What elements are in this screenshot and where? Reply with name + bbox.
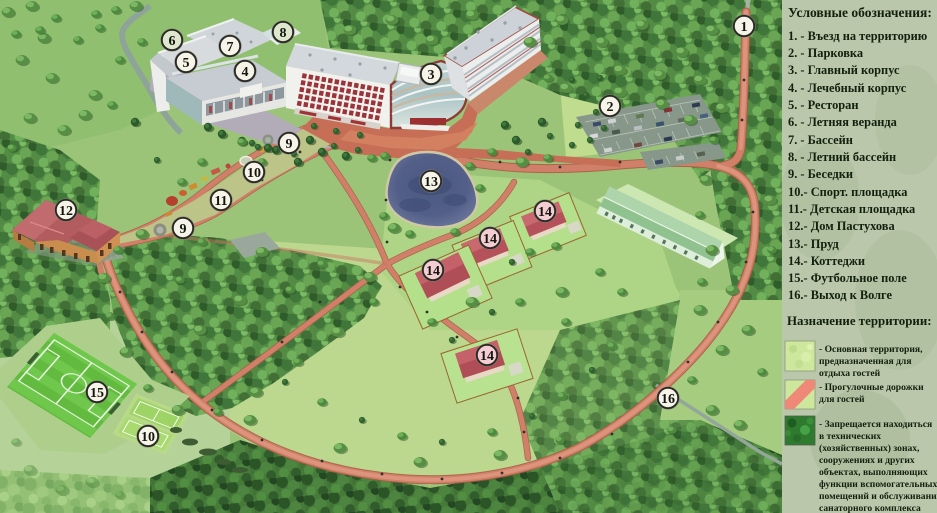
svg-text:для гостей: для гостей (819, 394, 865, 405)
svg-text:14: 14 (538, 205, 552, 220)
svg-text:11: 11 (214, 194, 227, 209)
svg-text:14: 14 (426, 264, 440, 279)
svg-text:12: 12 (59, 204, 73, 219)
svg-text:15.- Футбольное поле: 15.- Футбольное поле (788, 271, 907, 285)
svg-text:10: 10 (141, 430, 155, 445)
svg-text:14: 14 (480, 349, 494, 364)
svg-text:функции вспомогательных: функции вспомогательных (819, 479, 937, 490)
svg-text:11.- Детская площадка: 11.- Детская площадка (788, 202, 915, 216)
svg-text:- Прогулочные дорожки: - Прогулочные дорожки (819, 382, 924, 393)
svg-text:16: 16 (661, 392, 675, 407)
svg-text:6. - Летняя веранда: 6. - Летняя веранда (788, 115, 897, 129)
svg-text:1: 1 (741, 20, 748, 35)
svg-text:(хозяйственных) зонах,: (хозяйственных) зонах, (819, 443, 920, 454)
svg-text:помещений и обслуживания: помещений и обслуживания (819, 491, 937, 502)
svg-text:- Основная территория,: - Основная территория, (819, 344, 923, 355)
svg-text:4. - Лечебный корпус: 4. - Лечебный корпус (788, 81, 907, 95)
svg-text:6: 6 (169, 34, 176, 49)
svg-text:13: 13 (424, 175, 438, 190)
svg-text:10: 10 (247, 166, 261, 181)
svg-text:3. - Главный корпус: 3. - Главный корпус (788, 63, 900, 77)
svg-text:Назначение территории:: Назначение территории: (787, 314, 932, 328)
svg-text:12.- Дом Пастухова: 12.- Дом Пастухова (788, 219, 895, 233)
svg-text:16.- Выход к Волге: 16.- Выход к Волге (788, 288, 893, 302)
svg-text:13.- Пруд: 13.- Пруд (788, 237, 839, 251)
svg-text:Условные обозначения:: Условные обозначения: (788, 5, 932, 20)
svg-text:в технических: в технических (819, 431, 881, 442)
svg-text:5: 5 (183, 56, 190, 71)
svg-text:предназначенная для: предназначенная для (819, 356, 912, 367)
svg-text:7. - Бассейн: 7. - Бассейн (788, 133, 853, 147)
svg-text:8. - Летний бассейн: 8. - Летний бассейн (788, 150, 896, 164)
svg-text:сооружениях и других: сооружениях и других (819, 455, 915, 466)
svg-text:санаторного комплекса: санаторного комплекса (819, 503, 921, 513)
svg-text:- Запрещается находиться: - Запрещается находиться (819, 419, 932, 430)
svg-text:2. - Парковка: 2. - Парковка (788, 46, 863, 60)
svg-text:объектах, выполняющих: объектах, выполняющих (819, 467, 928, 478)
svg-text:5. - Ресторан: 5. - Ресторан (788, 98, 859, 112)
svg-text:9: 9 (286, 137, 293, 152)
svg-text:15: 15 (90, 386, 104, 401)
svg-text:14.- Коттеджи: 14.- Коттеджи (788, 254, 865, 268)
svg-text:14: 14 (483, 232, 497, 247)
svg-text:2: 2 (607, 100, 614, 115)
svg-text:7: 7 (227, 40, 234, 55)
svg-text:8: 8 (280, 26, 287, 41)
svg-text:3: 3 (428, 68, 435, 83)
svg-text:1. - Въезд на территорию: 1. - Въезд на территорию (788, 29, 927, 43)
svg-text:9. - Беседки: 9. - Беседки (788, 167, 853, 181)
svg-text:10.- Спорт. площадка: 10.- Спорт. площадка (788, 185, 907, 199)
svg-text:4: 4 (242, 65, 249, 80)
svg-text:отдыха гостей: отдыха гостей (819, 368, 881, 379)
svg-text:9: 9 (180, 222, 187, 237)
